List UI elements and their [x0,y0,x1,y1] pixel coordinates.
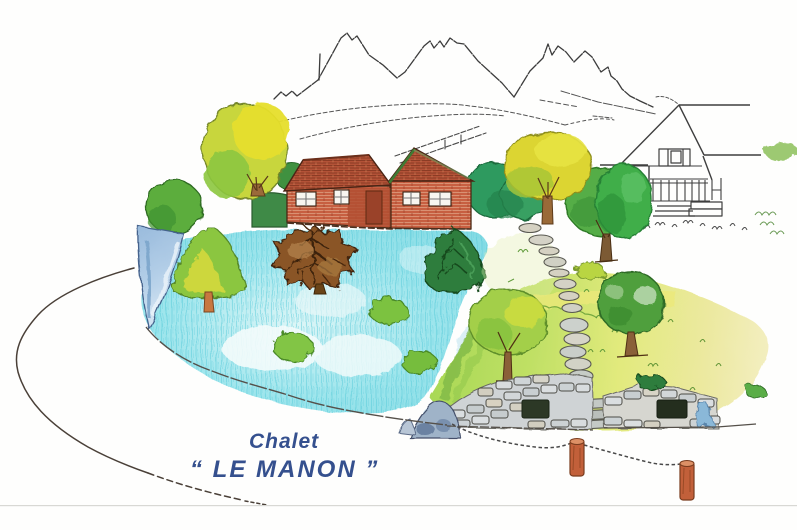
svg-text:“ LE MANON ”: “ LE MANON ” [190,456,379,483]
svg-text:Chalet: Chalet [249,430,319,453]
